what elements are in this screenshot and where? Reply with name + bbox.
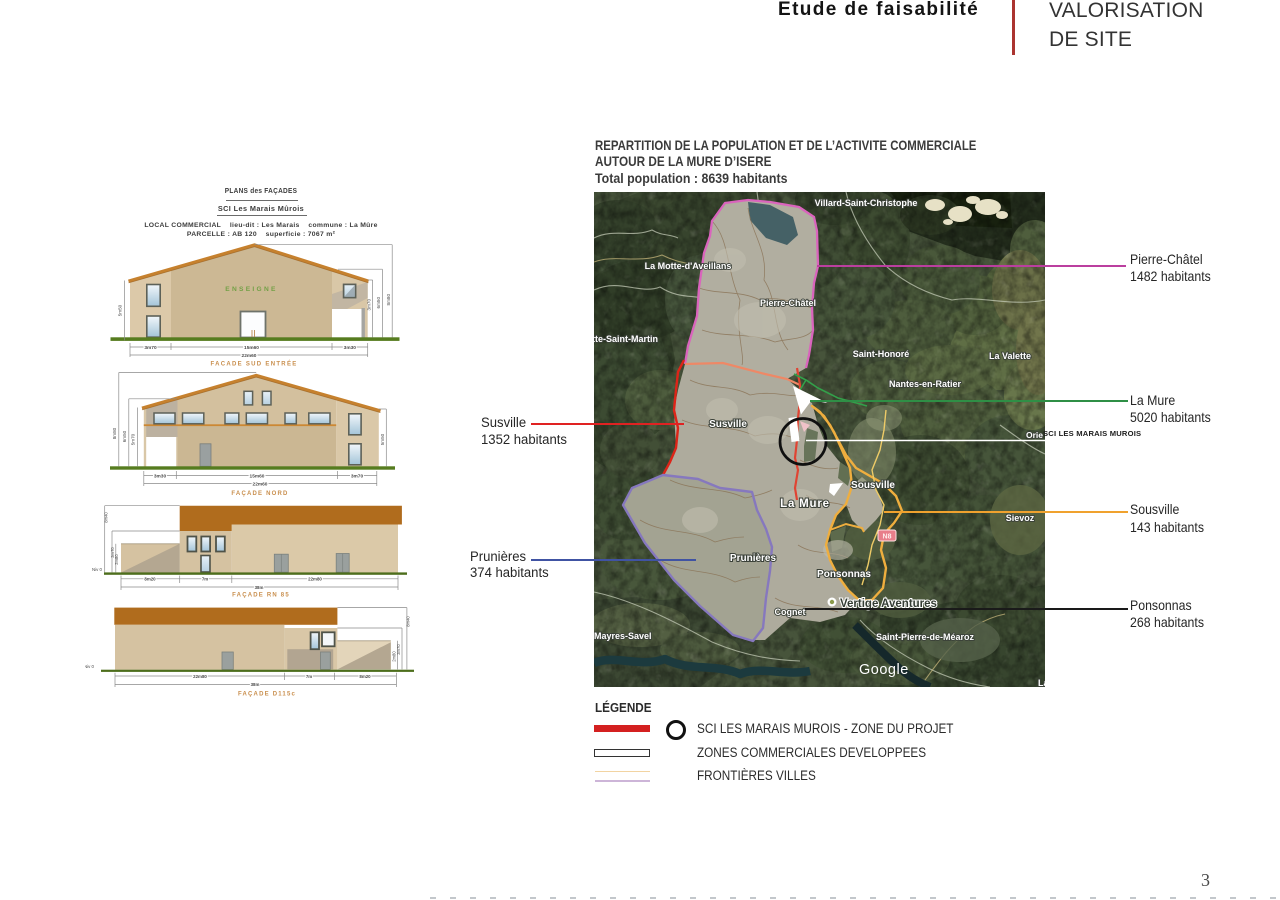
svg-text:Mayres-Savel: Mayres-Savel [594,631,652,641]
svg-text:8m40: 8m40 [406,616,411,627]
svg-text:Susville: Susville [709,419,747,430]
svg-text:Prunières: Prunières [730,553,777,564]
svg-text:38m: 38m [251,682,260,687]
svg-text:22m80: 22m80 [193,674,207,679]
svg-text:3m70: 3m70 [351,473,364,479]
svg-text:FAÇADE RN 85: FAÇADE RN 85 [232,593,290,599]
svg-text:8m80: 8m80 [386,294,391,306]
svg-text:6m50: 6m50 [122,430,127,442]
svg-text:3m30: 3m30 [154,473,167,479]
svg-text:La Valette: La Valette [989,351,1031,361]
svg-text:Google: Google [859,662,909,678]
svg-text:3m30: 3m30 [344,345,357,351]
svg-text:8m20: 8m20 [144,577,156,582]
svg-text:Cognet: Cognet [775,607,806,617]
svg-text:Niv 0: Niv 0 [92,567,103,572]
svg-text:Sievoz: Sievoz [1006,513,1035,523]
svg-text:7m: 7m [306,674,312,679]
svg-text:Ponsonnas: Ponsonnas [817,569,871,580]
svg-text:2m80: 2m80 [392,651,397,662]
svg-text:ENSEIGNE: ENSEIGNE [225,286,277,293]
svg-text:La Mure: La Mure [780,498,830,510]
svg-text:8m40: 8m40 [104,512,109,523]
svg-text:Saint-Honoré: Saint-Honoré [853,349,910,359]
svg-text:La Salle-en: La Salle-en [1038,678,1045,687]
svg-text:Niv 0: Niv 0 [85,664,95,669]
svg-text:N8: N8 [883,534,892,541]
svg-text:3m70: 3m70 [144,345,157,351]
svg-text:8m20: 8m20 [359,674,371,679]
svg-text:tte-Saint-Martin: tte-Saint-Martin [594,334,658,344]
svg-text:38m: 38m [255,585,264,590]
svg-text:15m60: 15m60 [244,345,259,351]
svg-text:FAÇADE NORD: FAÇADE NORD [231,491,288,497]
svg-text:FAÇADE D115c: FAÇADE D115c [238,692,296,698]
svg-text:22m80: 22m80 [308,577,322,582]
svg-text:Orie: Orie [1026,430,1043,440]
svg-text:2m80: 2m80 [114,554,119,565]
svg-text:8m80: 8m80 [112,427,117,439]
svg-text:6m50: 6m50 [376,297,381,309]
svg-text:Sousville: Sousville [851,480,895,491]
svg-text:22m60: 22m60 [242,353,257,359]
svg-text:15m60: 15m60 [250,473,265,479]
svg-text:3m70: 3m70 [396,644,401,655]
svg-text:7m: 7m [202,577,208,582]
svg-text:Pierre-Châtel: Pierre-Châtel [760,298,816,308]
svg-text:Saint-Pierre-de-Méaroz: Saint-Pierre-de-Méaroz [876,632,975,642]
svg-text:La Motte-d'Aveillans: La Motte-d'Aveillans [645,261,732,271]
svg-text:22m60: 22m60 [253,481,268,487]
svg-text:3m70: 3m70 [366,299,371,311]
svg-text:Villard-Saint-Christophe: Villard-Saint-Christophe [815,198,918,208]
svg-text:5m50: 5m50 [118,304,123,316]
svg-text:5m70: 5m70 [131,433,136,445]
svg-text:Nantes-en-Ratier: Nantes-en-Ratier [889,379,962,389]
svg-text:FACADE SUD ENTRÉE: FACADE SUD ENTRÉE [210,360,297,368]
svg-text:5m50: 5m50 [380,433,385,445]
